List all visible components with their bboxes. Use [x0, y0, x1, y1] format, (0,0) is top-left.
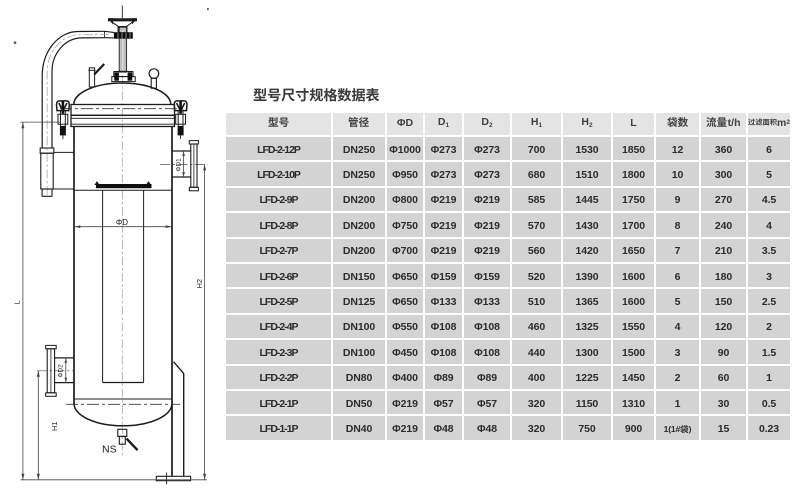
svg-text:ΦD2: ΦD2 — [58, 364, 65, 378]
svg-text:NS: NS — [102, 444, 117, 456]
svg-text:H2: H2 — [195, 279, 204, 289]
svg-text:H1: H1 — [50, 421, 59, 431]
svg-text:ΦD: ΦD — [116, 218, 128, 227]
svg-text:ΦD1: ΦD1 — [175, 158, 182, 172]
svg-text:L: L — [12, 300, 21, 304]
